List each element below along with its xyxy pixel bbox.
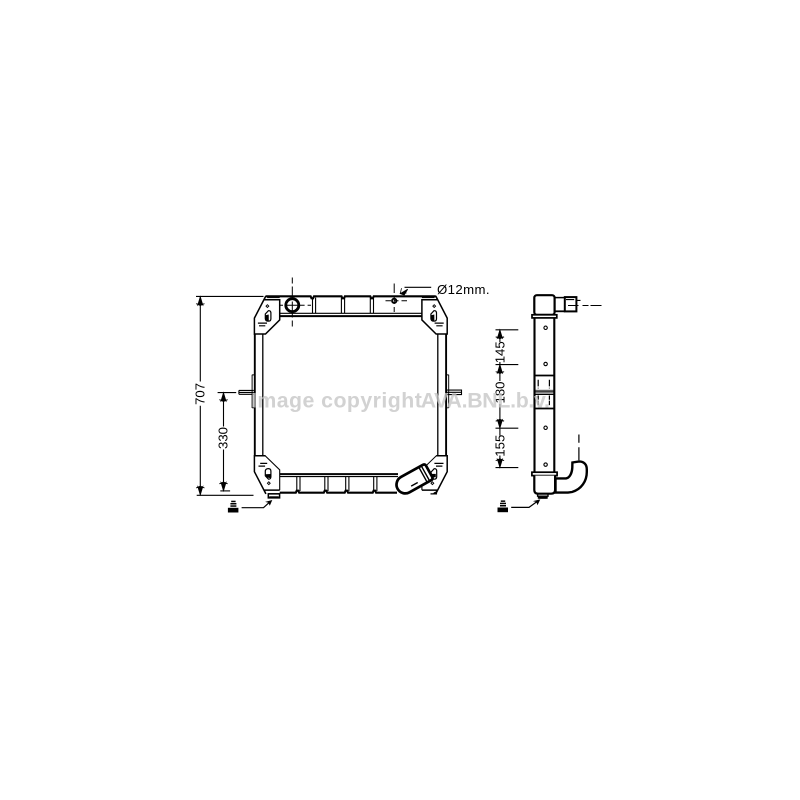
svg-text:155: 155 (492, 435, 507, 457)
svg-text:Ø12mm.: Ø12mm. (437, 282, 490, 297)
svg-text:145: 145 (492, 341, 507, 363)
svg-text:707: 707 (193, 383, 208, 405)
svg-text:Image copyright AVA.BNL.b.v.: Image copyright AVA.BNL.b.v. (251, 389, 550, 413)
svg-text:330: 330 (216, 427, 231, 449)
